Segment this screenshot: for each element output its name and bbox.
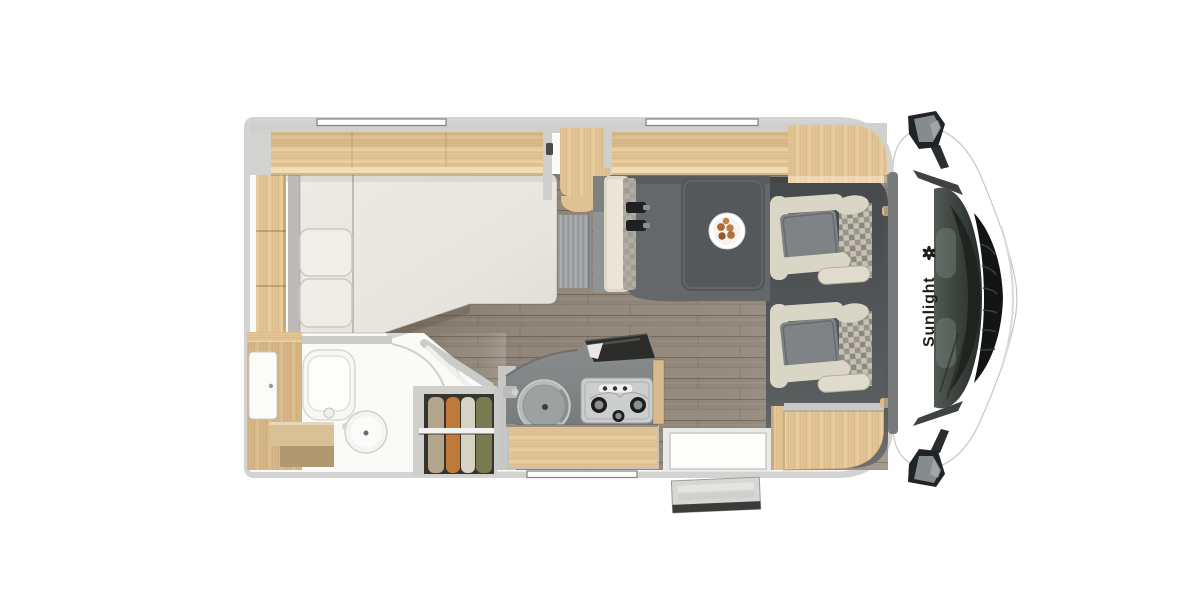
svg-text:Sunlight: Sunlight xyxy=(921,277,938,347)
